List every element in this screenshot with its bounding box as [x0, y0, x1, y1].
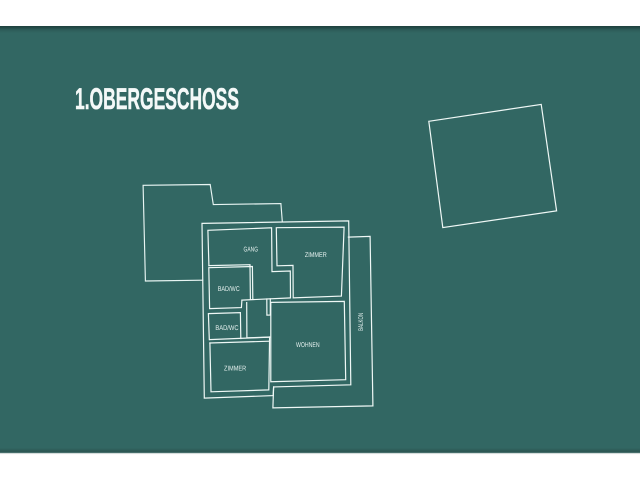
svg-text:WOHNEN: WOHNEN [296, 342, 320, 349]
svg-text:BAD/WC: BAD/WC [215, 325, 238, 332]
svg-text:ZIMMER: ZIMMER [305, 252, 327, 259]
svg-text:ZIMMER: ZIMMER [224, 365, 246, 372]
svg-text:GANG: GANG [244, 246, 259, 253]
svg-text:BALKON: BALKON [358, 313, 365, 331]
svg-text:BAD/WC: BAD/WC [218, 286, 240, 293]
